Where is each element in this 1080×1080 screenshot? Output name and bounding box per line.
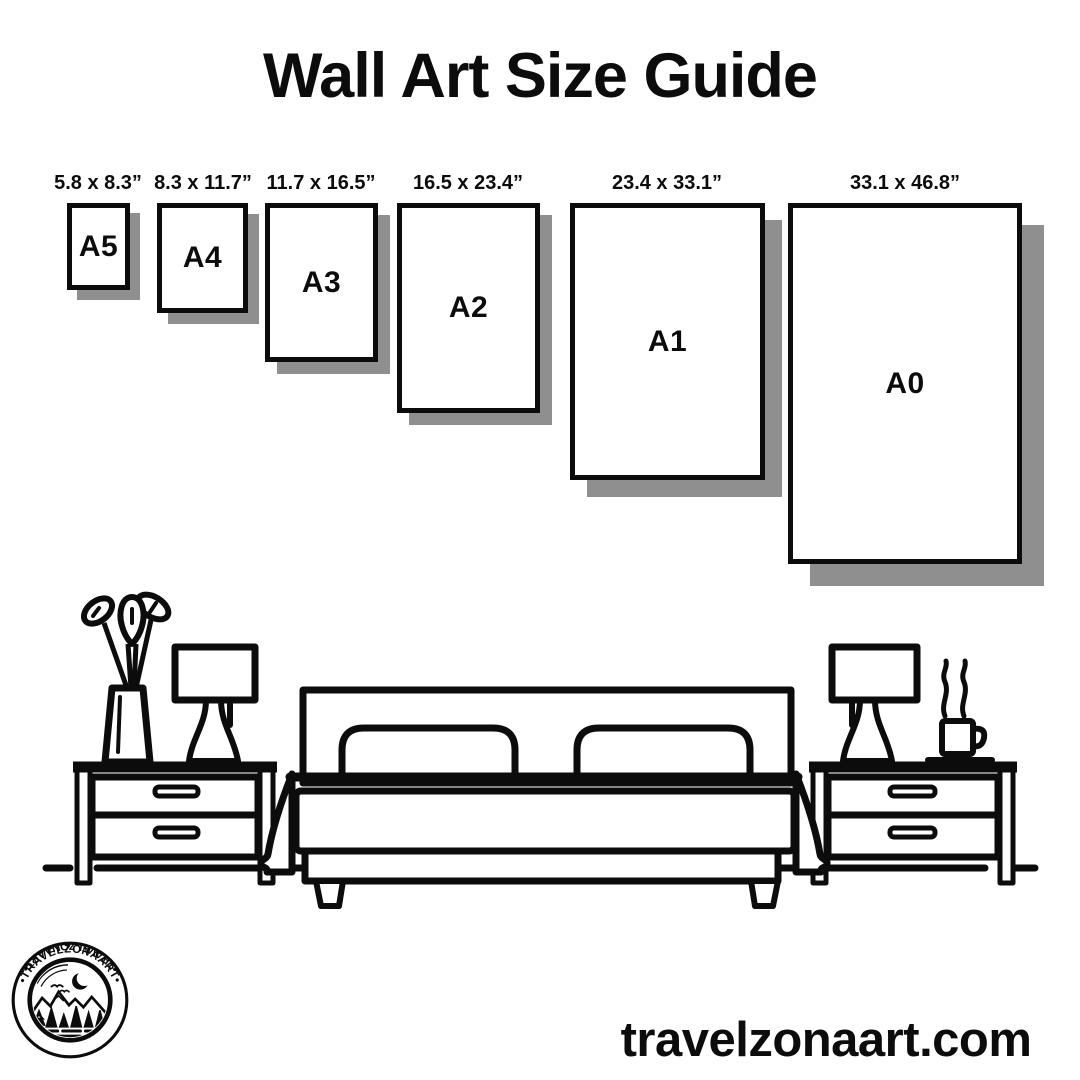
paper-a5: A5 [67, 203, 130, 290]
drawer-handle-icon [155, 828, 198, 837]
website-url: travelzonaart.com [621, 1012, 1032, 1068]
size-dims-a0: 33.1 x 46.8” [850, 172, 960, 195]
nightstand-right-leg-icon [1000, 765, 1013, 883]
mattress [296, 791, 794, 851]
bird-icon [51, 985, 62, 987]
paper-a3: A3 [265, 203, 378, 362]
steam-icon [944, 661, 947, 716]
paper-a4: A4 [157, 203, 248, 313]
paper-a2: A2 [397, 203, 540, 413]
paper-label-a4: A4 [183, 241, 222, 275]
size-dims-a1: 23.4 x 33.1” [612, 172, 722, 195]
bedroom-illustration [40, 590, 1040, 920]
drawer-handle-icon [890, 787, 935, 796]
bed-base [305, 851, 778, 881]
pine-trees-icon [34, 1006, 104, 1027]
size-dims-a4: 8.3 x 11.7” [154, 172, 252, 195]
mountains-icon [31, 992, 107, 1015]
vase-body [105, 688, 150, 762]
bed-leg-icon [751, 881, 778, 906]
paper-label-a2: A2 [449, 291, 488, 325]
table-lamp-right-icon [832, 647, 917, 761]
table-lamp-left-icon [175, 647, 255, 761]
nightstand-left-leg-icon [77, 765, 90, 883]
size-dims-a2: 16.5 x 23.4” [413, 172, 523, 195]
brand-logo: •TRAVELZONAART• •TRAVELZONAART• [8, 938, 132, 1062]
paper-label-a0: A0 [885, 367, 924, 401]
bed-leg-icon [316, 881, 343, 906]
bird-icon [60, 990, 69, 991]
paper-label-a1: A1 [648, 325, 687, 359]
paper-a1: A1 [570, 203, 765, 480]
paper-a0: A0 [788, 203, 1022, 564]
paper-label-a5: A5 [79, 230, 118, 264]
flower-stem [128, 644, 136, 688]
drawer-handle-icon [890, 828, 935, 837]
page-title: Wall Art Size Guide [0, 40, 1080, 112]
coffee-cup-icon [928, 661, 992, 760]
size-dims-a5: 5.8 x 8.3” [54, 172, 142, 195]
vase-highlight [118, 697, 120, 752]
lamp-shade [175, 647, 255, 700]
wall-art-size-guide-poster: Wall Art Size Guide 5.8 x 8.3” A5 8.3 x … [0, 0, 1080, 1080]
lamp-shade [832, 647, 917, 700]
moon-cutout [77, 971, 93, 987]
flower-vase-icon [79, 590, 172, 762]
paper-label-a3: A3 [302, 266, 341, 300]
cup-body [942, 721, 973, 754]
size-dims-a3: 11.7 x 16.5” [267, 172, 376, 195]
bed [261, 690, 827, 906]
drawer-handle-icon [155, 787, 198, 796]
steam-icon [963, 661, 966, 716]
